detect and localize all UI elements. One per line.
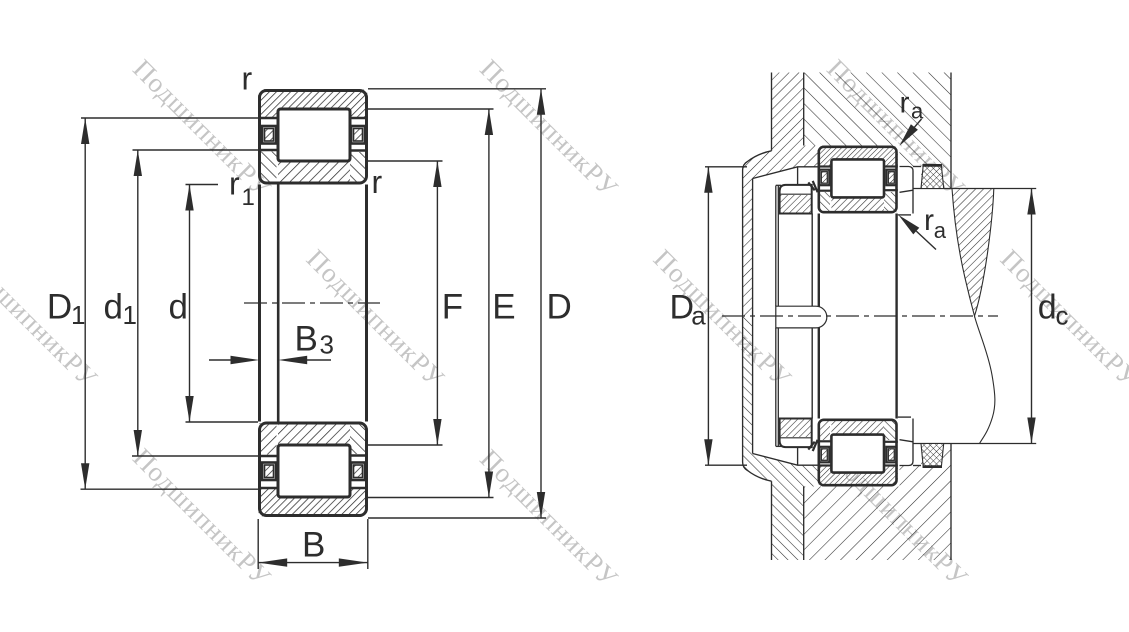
svg-text:r: r	[900, 86, 910, 119]
svg-text:d: d	[169, 288, 188, 327]
svg-text:3: 3	[320, 330, 334, 360]
svg-text:a: a	[911, 99, 924, 124]
svg-text:r: r	[229, 166, 240, 202]
svg-text:a: a	[934, 218, 947, 243]
svg-text:d: d	[1038, 289, 1057, 327]
svg-text:1: 1	[123, 300, 137, 330]
svg-text:1: 1	[242, 184, 255, 211]
svg-text:E: E	[492, 288, 515, 327]
svg-text:1: 1	[71, 300, 85, 330]
svg-text:D: D	[47, 288, 72, 327]
svg-text:B: B	[302, 526, 325, 565]
svg-text:a: a	[691, 301, 706, 331]
svg-text:D: D	[547, 288, 572, 327]
svg-text:B: B	[295, 320, 318, 359]
svg-text:F: F	[442, 288, 463, 327]
svg-text:r: r	[242, 61, 253, 97]
svg-text:r: r	[372, 164, 383, 200]
svg-text:c: c	[1056, 301, 1069, 331]
svg-text:d: d	[104, 288, 123, 327]
svg-text:r: r	[924, 204, 934, 237]
